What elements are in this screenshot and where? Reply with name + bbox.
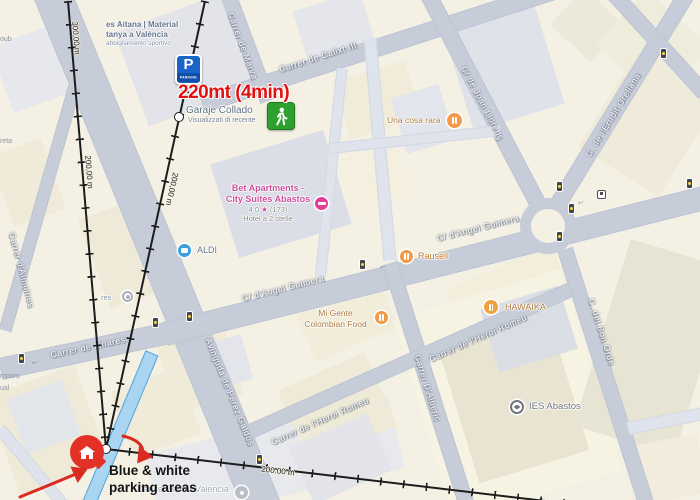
poi-bet-line1: Bet Apartments - xyxy=(213,183,323,194)
school-icon[interactable] xyxy=(510,400,524,414)
star-icon: ★ xyxy=(261,205,268,214)
one-way-arrow-icon: ← xyxy=(29,355,40,367)
hotel-icon[interactable] xyxy=(315,197,328,210)
map-text-fragment: ual xyxy=(0,385,9,392)
poi-aitana-line1: es Aitana | Material xyxy=(106,20,178,30)
poi-garaje-sub: Visualizzati di recente xyxy=(188,117,256,124)
traffic-light-icon xyxy=(686,178,693,189)
generic-poi-icon[interactable] xyxy=(235,486,248,499)
poi-mi-gente[interactable]: Mi Gente Colombian Food xyxy=(298,308,373,329)
traffic-light-icon xyxy=(186,311,193,322)
parking-sign[interactable]: P PARKING xyxy=(175,54,202,85)
poi-bet-category: Hotel a 2 stelle xyxy=(213,214,323,223)
graduation-cap-glyph xyxy=(514,405,521,410)
traffic-light-icon xyxy=(556,231,563,242)
poi-bet-apartments[interactable]: Bet Apartments - City Suites Abastos 4.0… xyxy=(213,183,323,223)
poi-ies-abastos[interactable]: IES Abastos xyxy=(529,401,581,412)
restaurant-icon[interactable] xyxy=(375,311,388,324)
transit-stop-icon xyxy=(597,190,606,199)
poi-hawaika[interactable]: HAWAIKA xyxy=(505,302,546,312)
parking-sign-caption: PARKING xyxy=(180,76,197,79)
restaurant-icon[interactable] xyxy=(400,250,413,263)
map-text-fragment: reta xyxy=(0,138,12,145)
fork-knife-glyph xyxy=(378,314,386,322)
poi-mi-gente-line1: Mi Gente xyxy=(298,308,373,319)
restaurant-icon[interactable] xyxy=(447,113,462,128)
parking-note-annotation: Blue & white parking areas xyxy=(109,463,197,497)
poi-aitana-line2: tanya a València xyxy=(106,30,178,40)
map-canvas[interactable]: Carrer de Calixt III Carrer de Marvà C/ … xyxy=(0,0,700,500)
traffic-light-icon xyxy=(152,317,159,328)
fork-knife-glyph xyxy=(487,303,495,311)
traffic-light-icon xyxy=(568,203,575,214)
home-marker[interactable] xyxy=(70,435,104,469)
poi-bet-line2: City Suites Abastos xyxy=(213,194,323,205)
measure-waypoint-circle[interactable] xyxy=(174,112,184,122)
fork-knife-glyph xyxy=(451,117,459,125)
poi-garaje-collado[interactable]: Garaje Collado xyxy=(186,105,253,116)
poi-una-cosa-rara[interactable]: Una cosa rara xyxy=(387,115,440,125)
parking-note-line2: parking areas xyxy=(109,480,197,497)
traffic-light-icon xyxy=(18,353,25,364)
poi-aitana[interactable]: es Aitana | Material tanya a València ab… xyxy=(106,20,178,48)
walk-distance-annotation: 220mt (4min) xyxy=(178,82,289,104)
poi-bet-rating: 4.0 xyxy=(249,205,259,214)
walking-person-glyph xyxy=(271,106,291,126)
bed-glyph xyxy=(318,202,326,206)
fork-knife-glyph xyxy=(403,253,411,261)
restaurant-icon[interactable] xyxy=(484,300,498,314)
cart-glyph xyxy=(181,248,188,253)
poi-rausell[interactable]: Rausell xyxy=(418,251,448,261)
traffic-light-icon xyxy=(660,48,667,59)
walking-person-icon[interactable] xyxy=(267,102,295,130)
home-icon xyxy=(79,446,95,459)
map-text-fragment: mparo xyxy=(0,373,20,380)
poi-bet-reviews: (173) xyxy=(270,205,288,214)
parking-note-line1: Blue & white xyxy=(109,463,197,480)
poi-fragment-res: res. xyxy=(101,293,114,302)
one-way-arrow-icon: ← xyxy=(575,195,586,207)
generic-poi-icon xyxy=(122,291,133,302)
traffic-light-icon xyxy=(359,259,366,270)
parking-sign-letter: P xyxy=(177,56,200,73)
dot-glyph xyxy=(126,295,130,299)
poi-mi-gente-line2: Colombian Food xyxy=(298,319,373,330)
poi-aitana-line3: abbigliamento sportivo xyxy=(106,40,178,48)
poi-aldi[interactable]: ALDI xyxy=(197,245,217,255)
map-text-fragment: oub xyxy=(0,36,12,43)
traffic-light-icon xyxy=(556,181,563,192)
supermarket-icon[interactable] xyxy=(178,244,191,257)
dot-glyph xyxy=(240,491,244,495)
measure-label-200m-left: 200,00 m xyxy=(83,155,95,189)
